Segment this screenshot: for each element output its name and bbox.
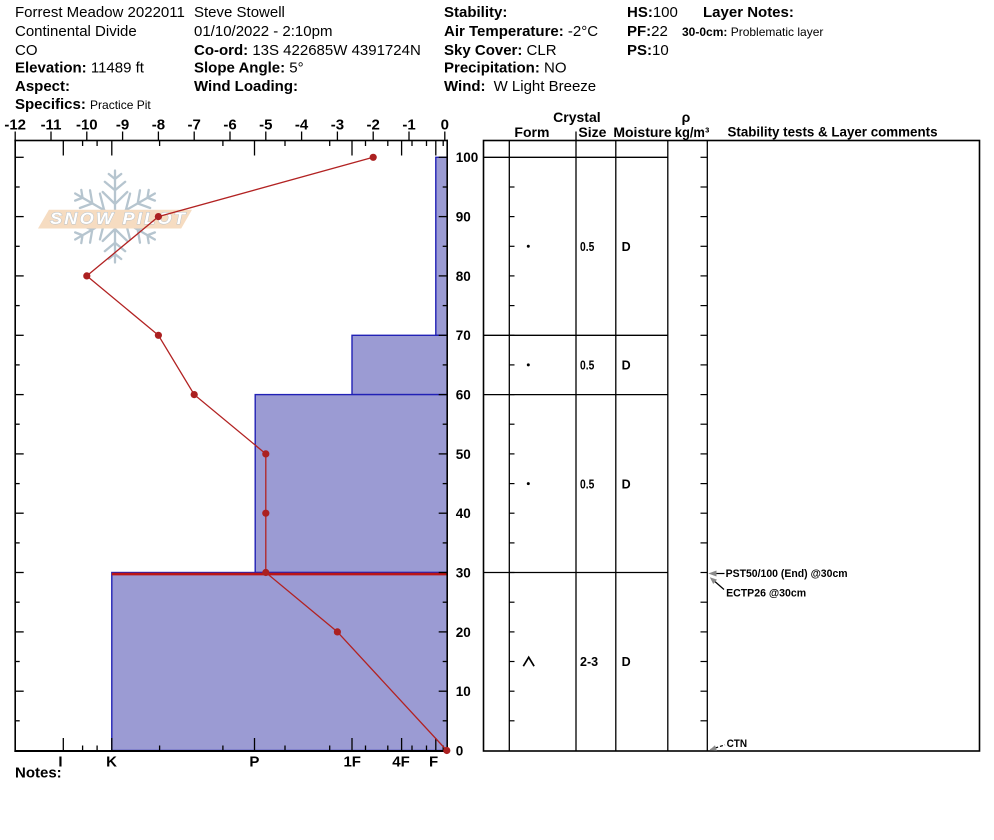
svg-text:-4: -4 (295, 117, 309, 134)
svg-text:ρ: ρ (682, 109, 691, 125)
svg-text:D: D (622, 240, 631, 254)
svg-text:ECTP26 @30cm: ECTP26 @30cm (726, 587, 806, 599)
svg-text:Air Temperature: -2°C: Air Temperature: -2°C (444, 23, 598, 40)
svg-text:Size: Size (578, 124, 606, 140)
svg-text:PST50/100 (End) @30cm: PST50/100 (End) @30cm (726, 568, 848, 580)
svg-text:0.5: 0.5 (580, 240, 594, 254)
svg-text:80: 80 (456, 269, 471, 284)
svg-text:Wind:: Wind: (444, 78, 486, 95)
svg-text:Notes:: Notes: (15, 765, 62, 782)
svg-text:0.5: 0.5 (580, 359, 594, 373)
svg-text:20: 20 (456, 625, 471, 640)
svg-text:0: 0 (441, 117, 449, 134)
svg-text:K: K (106, 754, 117, 771)
svg-text:-8: -8 (152, 117, 165, 134)
svg-text:-7: -7 (188, 117, 201, 134)
svg-text:90: 90 (456, 210, 471, 225)
svg-text:-9: -9 (116, 117, 129, 134)
svg-text:-2: -2 (367, 117, 380, 134)
svg-text:-12: -12 (4, 117, 26, 134)
svg-text:Sky Cover: CLR: Sky Cover: CLR (444, 42, 557, 59)
svg-text:Moisture: Moisture (613, 124, 672, 140)
svg-text:Aspect:: Aspect: (15, 78, 70, 95)
svg-text:Forrest Meadow 2022011: Forrest Meadow 2022011 (15, 4, 185, 21)
svg-text:30-0cm: Problematic layer: 30-0cm: Problematic layer (682, 25, 823, 39)
svg-text:Stability:: Stability: (444, 4, 507, 21)
svg-text:10: 10 (456, 684, 471, 699)
svg-text:-11: -11 (41, 117, 62, 134)
svg-text:kg/m³: kg/m³ (675, 124, 710, 140)
svg-text:Wind Loading:: Wind Loading: (194, 78, 298, 95)
svg-text:Elevation: 11489 ft: Elevation: 11489 ft (15, 60, 145, 77)
svg-text:Steve Stowell: Steve Stowell (194, 4, 285, 21)
svg-text:Stability tests & Layer commen: Stability tests & Layer comments (728, 124, 938, 140)
svg-text:-3: -3 (331, 117, 344, 134)
svg-text:Continental Divide: Continental Divide (15, 23, 137, 40)
svg-text:4F: 4F (392, 754, 410, 771)
svg-text:Crystal: Crystal (553, 109, 600, 125)
svg-text:PS:10: PS:10 (627, 42, 669, 59)
svg-text:CO: CO (15, 42, 38, 59)
svg-text:HS:100: HS:100 (627, 4, 678, 21)
svg-text:50: 50 (456, 447, 471, 462)
svg-text:Layer Notes:: Layer Notes: (703, 4, 794, 21)
svg-text:30: 30 (456, 565, 471, 580)
svg-text:Form: Form (514, 124, 549, 140)
svg-text:0.5: 0.5 (580, 477, 594, 491)
svg-text:Precipitation: NO: Precipitation: NO (444, 60, 567, 77)
svg-text:1F: 1F (343, 754, 361, 771)
svg-text:PF:22: PF:22 (627, 23, 668, 40)
svg-text:P: P (249, 754, 259, 771)
svg-text:F: F (429, 754, 438, 771)
svg-text:Specifics: Practice Pit: Specifics: Practice Pit (15, 96, 151, 113)
svg-text:0: 0 (456, 743, 464, 758)
svg-text:100: 100 (456, 150, 479, 165)
svg-text:Co-ord: 13S 422685W 4391724N: Co-ord: 13S 422685W 4391724N (194, 42, 421, 59)
svg-text:01/10/2022 - 2:10pm: 01/10/2022 - 2:10pm (194, 23, 332, 40)
svg-text:D: D (622, 655, 631, 669)
svg-text:Slope Angle: 5°: Slope Angle: 5° (194, 60, 304, 77)
svg-text:2-3: 2-3 (580, 655, 598, 669)
svg-text:SNOW PILOT: SNOW PILOT (50, 210, 187, 228)
svg-text:-6: -6 (223, 117, 236, 134)
svg-text:70: 70 (456, 328, 471, 343)
svg-text:W Light Breeze: W Light Breeze (494, 78, 597, 95)
svg-text:60: 60 (456, 388, 471, 403)
svg-text:40: 40 (456, 506, 471, 521)
svg-text:D: D (622, 359, 631, 373)
svg-text:-5: -5 (259, 117, 272, 134)
svg-text:-1: -1 (402, 117, 415, 134)
svg-text:-10: -10 (76, 117, 98, 134)
svg-text:D: D (622, 477, 631, 491)
svg-text:CTN: CTN (727, 738, 748, 750)
